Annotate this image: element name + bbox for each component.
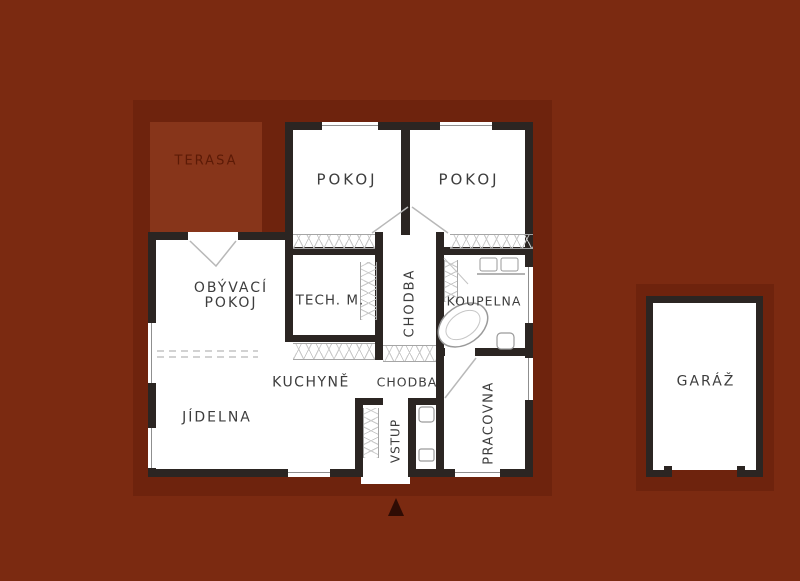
wall-hall-right [436,232,444,360]
door-hatch-entry [363,408,379,458]
wall-study-left [436,348,444,477]
entrance-threshold [361,477,410,484]
terrace-area [150,122,262,232]
window-bottom-kitchen [288,469,330,477]
garage-wall-right [756,296,763,477]
room-label-terasa: TERASA [175,154,238,169]
door-hatch-hall [383,345,436,362]
window-left-2 [148,428,156,468]
entrance-opening [362,469,409,477]
room-label-tech-m: TECH. M. [296,294,365,309]
garage-door-jamb-left [664,466,672,477]
door-hatch-pokoj-right [450,234,533,249]
room-label-obyvaci-pokoj: OBÝVACÍ POKOJ [194,281,268,311]
wall-entry-right [408,398,416,477]
closet-hatch-tech [360,262,377,320]
garage-door-jamb-right [737,466,745,477]
room-label-garaz: GARÁŽ [677,375,736,390]
room-label-obyvaci-line1: OBÝVACÍ [194,281,268,296]
kitchen-counter-hatch [293,343,375,360]
wall-entry-left [355,398,363,477]
door-hatch-pokoj-left [293,234,375,249]
room-label-vstup: VSTUP [389,419,404,463]
entrance-arrow [388,498,404,516]
floor-plan-canvas: TERASA POKOJ POKOJ OBÝVACÍ POKOJ TECH. M… [0,0,800,581]
room-label-pokoj-left: POKOJ [316,173,377,188]
garage-wall-top [646,296,763,303]
window-bathroom [525,267,533,323]
room-label-jidelna: JÍDELNA [182,411,252,426]
room-label-chodba-vertical: CHODBA [403,269,418,338]
garage-wall-left [646,296,653,477]
room-label-chodba-horizontal: CHODBA [377,375,438,390]
room-label-kuchyne: KUCHYNĚ [272,376,350,391]
room-label-obyvaci-line2: POKOJ [194,296,268,311]
window-study [525,358,533,400]
wall-tech-bottom [285,335,383,342]
wall-pokoj-divider [401,122,410,235]
wall-upper-left [285,122,293,248]
room-label-pokoj-right: POKOJ [438,173,499,188]
window-bottom-study [455,469,500,477]
window-pokoj-left [322,122,378,130]
room-label-pracovna: PRACOVNA [482,381,497,465]
wall-tech-left [285,240,293,342]
door-terrace [188,232,238,240]
wall-entry-top-stub [355,398,383,405]
wall-wc-top [408,398,444,405]
window-left-1 [148,323,156,383]
door-study [445,348,475,356]
window-pokoj-right [440,122,492,130]
room-label-koupelna: KOUPELNA [447,294,522,309]
